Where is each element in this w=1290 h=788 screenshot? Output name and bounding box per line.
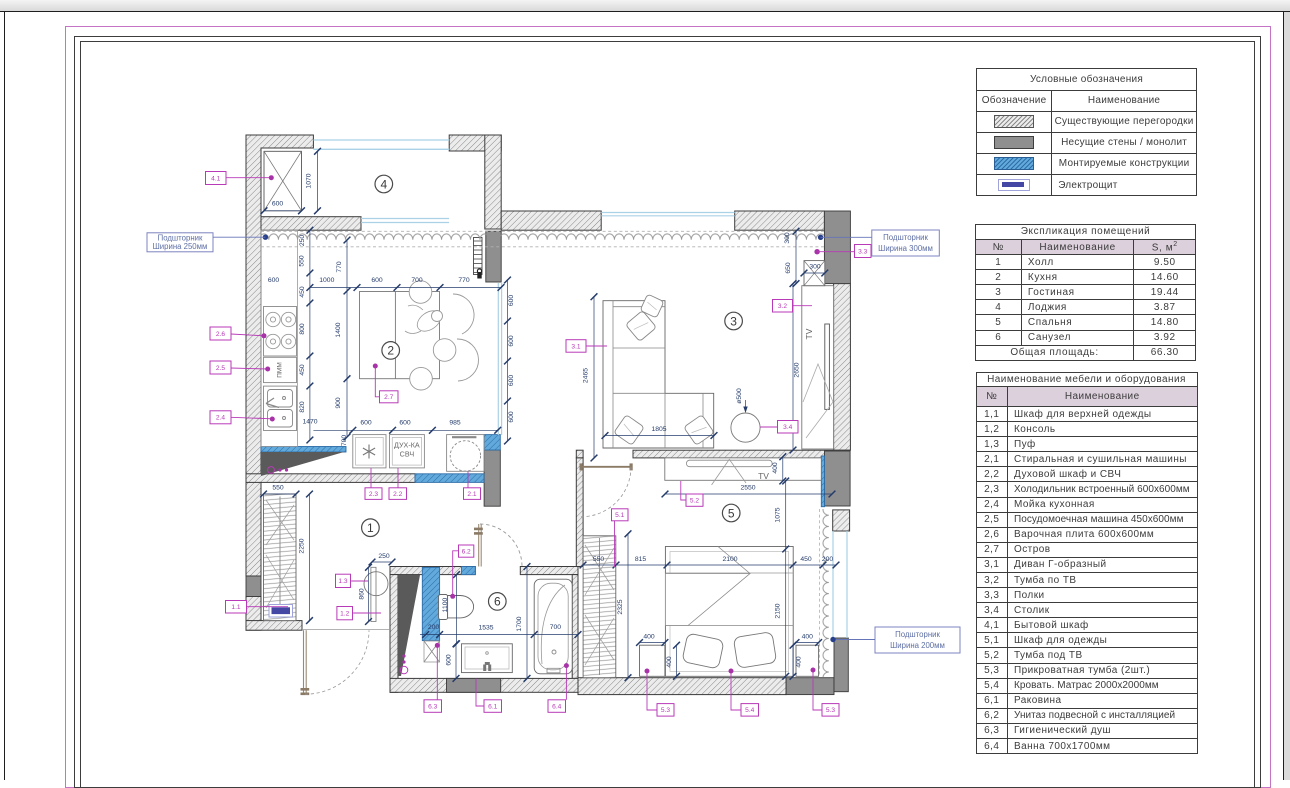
- svg-text:600: 600: [272, 201, 284, 208]
- svg-text:2100: 2100: [722, 556, 737, 563]
- svg-text:4.1: 4.1: [211, 175, 220, 182]
- svg-text:5.1: 5.1: [615, 512, 624, 519]
- svg-text:3.1: 3.1: [571, 343, 580, 350]
- svg-text:Ширина 200мм: Ширина 200мм: [890, 641, 945, 650]
- svg-text:770: 770: [458, 277, 470, 284]
- svg-text:1700: 1700: [516, 616, 523, 631]
- svg-text:550: 550: [593, 556, 605, 563]
- svg-text:2.4: 2.4: [216, 415, 225, 422]
- svg-text:6: 6: [494, 595, 501, 609]
- svg-text:200: 200: [428, 624, 440, 631]
- svg-text:600: 600: [371, 277, 383, 284]
- svg-text:600: 600: [268, 277, 280, 284]
- svg-text:600: 600: [508, 335, 515, 347]
- svg-text:3.3: 3.3: [858, 248, 867, 255]
- svg-text:800: 800: [299, 323, 306, 335]
- svg-text:2325: 2325: [617, 599, 624, 614]
- svg-text:400: 400: [643, 634, 655, 641]
- svg-text:СВЧ: СВЧ: [400, 450, 415, 459]
- svg-text:550: 550: [272, 485, 284, 492]
- svg-text:5.3: 5.3: [661, 707, 670, 714]
- svg-text:Подшторник: Подшторник: [883, 233, 928, 242]
- svg-text:250: 250: [299, 235, 306, 247]
- svg-text:450: 450: [299, 286, 306, 298]
- svg-text:550: 550: [299, 255, 306, 267]
- svg-text:600: 600: [446, 654, 453, 666]
- svg-text:450: 450: [299, 364, 306, 376]
- svg-text:815: 815: [635, 556, 647, 563]
- svg-text:ДУХ-КА: ДУХ-КА: [394, 441, 420, 450]
- svg-text:TV: TV: [758, 471, 769, 481]
- svg-text:2: 2: [387, 344, 394, 358]
- svg-text:5.3: 5.3: [826, 707, 835, 714]
- svg-text:1.1: 1.1: [231, 604, 240, 611]
- svg-text:5: 5: [728, 506, 735, 520]
- svg-text:Подшторник: Подшторник: [895, 630, 940, 639]
- svg-text:400: 400: [796, 656, 803, 668]
- svg-text:1.2: 1.2: [340, 610, 349, 617]
- svg-text:6.2: 6.2: [462, 548, 471, 555]
- svg-text:400: 400: [666, 656, 673, 668]
- svg-text:300: 300: [784, 232, 791, 244]
- svg-text:2650: 2650: [794, 362, 801, 377]
- svg-text:600: 600: [508, 295, 515, 307]
- svg-text:2150: 2150: [775, 603, 782, 618]
- svg-text:820: 820: [299, 401, 306, 413]
- svg-text:ø500: ø500: [736, 388, 743, 404]
- svg-text:1075: 1075: [775, 507, 782, 522]
- svg-text:5.4: 5.4: [745, 707, 754, 714]
- svg-text:250: 250: [378, 553, 390, 560]
- svg-text:400: 400: [772, 462, 779, 474]
- svg-text:6.4: 6.4: [552, 703, 561, 710]
- svg-text:6.1: 6.1: [488, 703, 497, 710]
- svg-text:450: 450: [800, 556, 812, 563]
- svg-text:1000: 1000: [319, 277, 334, 284]
- svg-text:700: 700: [411, 277, 423, 284]
- svg-text:300: 300: [809, 264, 821, 271]
- svg-text:Ширина 300мм: Ширина 300мм: [878, 244, 933, 253]
- svg-text:Ширина 250мм: Ширина 250мм: [153, 242, 208, 251]
- svg-text:650: 650: [785, 262, 792, 274]
- svg-text:600: 600: [508, 411, 515, 423]
- svg-text:400: 400: [802, 634, 814, 641]
- svg-text:2.2: 2.2: [393, 491, 402, 498]
- svg-text:TV: TV: [804, 328, 814, 339]
- svg-text:860: 860: [359, 588, 366, 600]
- svg-text:1400: 1400: [335, 322, 342, 337]
- svg-text:5.2: 5.2: [690, 497, 699, 504]
- svg-text:2.5: 2.5: [216, 365, 225, 372]
- svg-text:2465: 2465: [583, 368, 590, 383]
- svg-text:1470: 1470: [302, 419, 317, 426]
- svg-text:600: 600: [399, 420, 411, 427]
- svg-text:200: 200: [822, 556, 834, 563]
- svg-text:1805: 1805: [651, 426, 666, 433]
- svg-text:1: 1: [367, 521, 374, 535]
- svg-text:700: 700: [550, 624, 562, 631]
- svg-text:3: 3: [730, 314, 737, 328]
- svg-text:600: 600: [508, 375, 515, 387]
- svg-text:2.6: 2.6: [216, 331, 225, 338]
- svg-text:ПММ: ПММ: [277, 362, 284, 378]
- svg-text:1070: 1070: [306, 173, 313, 188]
- svg-text:600: 600: [360, 420, 372, 427]
- svg-text:4: 4: [380, 177, 387, 191]
- svg-text:2250: 2250: [299, 538, 306, 553]
- svg-text:2.7: 2.7: [384, 394, 393, 401]
- svg-text:700: 700: [341, 435, 348, 447]
- svg-text:900: 900: [335, 397, 342, 409]
- svg-text:2550: 2550: [740, 485, 755, 492]
- svg-text:3.2: 3.2: [778, 303, 787, 310]
- svg-text:985: 985: [449, 420, 461, 427]
- svg-text:3.4: 3.4: [783, 424, 792, 431]
- svg-text:2.3: 2.3: [369, 491, 378, 498]
- svg-text:770: 770: [336, 261, 343, 273]
- svg-text:1100: 1100: [442, 597, 449, 612]
- svg-text:1535: 1535: [478, 625, 493, 632]
- svg-text:2.1: 2.1: [467, 491, 476, 498]
- svg-text:6.3: 6.3: [428, 703, 437, 710]
- svg-text:1.3: 1.3: [338, 578, 347, 585]
